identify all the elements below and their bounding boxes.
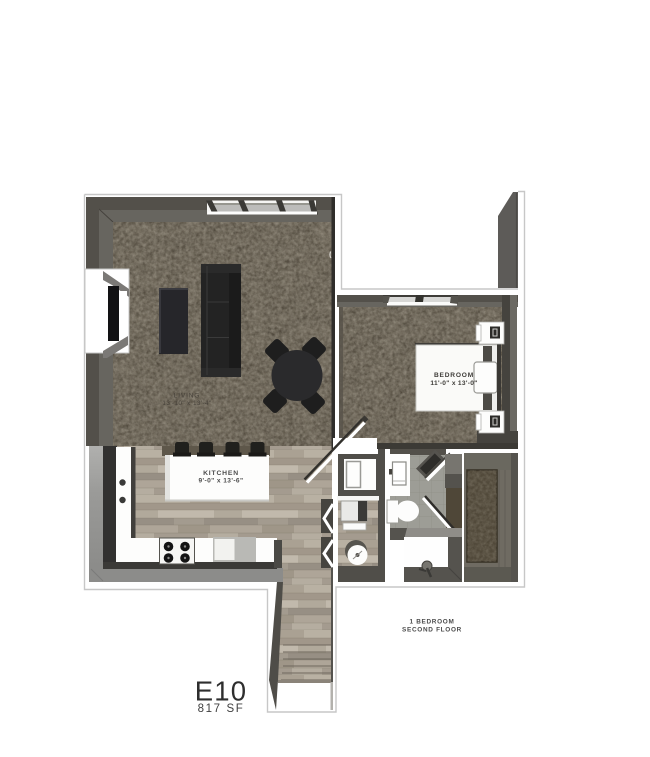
svg-text:BEDROOM: BEDROOM — [434, 372, 474, 379]
svg-text:SECOND FLOOR: SECOND FLOOR — [402, 627, 462, 634]
svg-text:817 SF: 817 SF — [198, 703, 245, 715]
svg-text:11'-0" x 13'-0": 11'-0" x 13'-0" — [430, 380, 477, 387]
svg-text:KITCHEN: KITCHEN — [203, 470, 239, 477]
svg-text:E10: E10 — [195, 676, 248, 707]
svg-text:13'-10" x 13'-4": 13'-10" x 13'-4" — [162, 400, 211, 407]
svg-text:1 BEDROOM: 1 BEDROOM — [409, 619, 454, 626]
svg-text:LIVING: LIVING — [174, 393, 200, 400]
svg-text:9'-0" x 13'-6": 9'-0" x 13'-6" — [198, 478, 243, 485]
